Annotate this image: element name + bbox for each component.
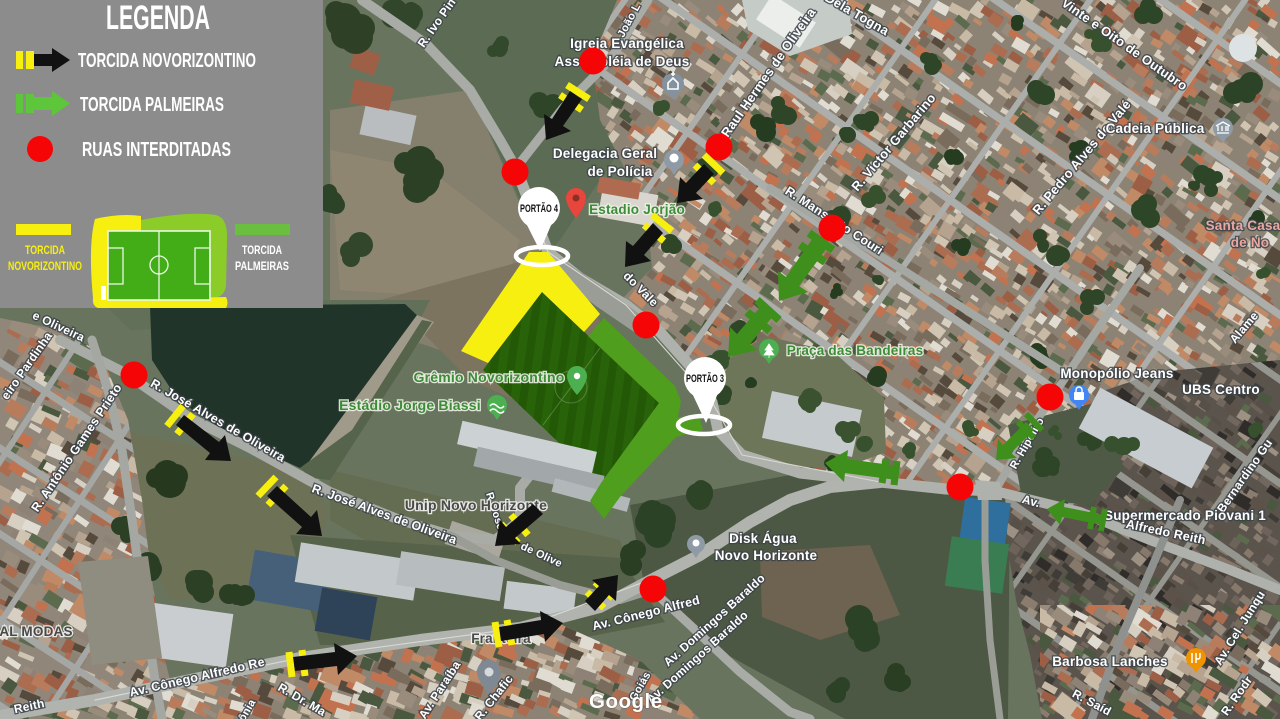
- svg-text:TORCIDA PALMEIRAS: TORCIDA PALMEIRAS: [80, 94, 224, 116]
- svg-text:Grêmio Novorizontino: Grêmio Novorizontino: [414, 369, 565, 385]
- svg-text:PORTÃO 3: PORTÃO 3: [686, 372, 724, 385]
- svg-text:Disk Água: Disk Água: [729, 531, 797, 546]
- svg-text:de No: de No: [1231, 235, 1270, 250]
- svg-text:TORCIDA NOVORIZONTINO: TORCIDA NOVORIZONTINO: [78, 50, 256, 72]
- svg-text:Monopólio Jeans: Monopólio Jeans: [1060, 366, 1173, 381]
- svg-text:Igreja Evangélica: Igreja Evangélica: [570, 36, 684, 51]
- svg-text:NOVORIZONTINO: NOVORIZONTINO: [8, 259, 82, 273]
- svg-text:Santa Casa: Santa Casa: [1206, 218, 1280, 233]
- svg-text:RUAS INTERDITADAS: RUAS INTERDITADAS: [82, 139, 231, 161]
- svg-text:de Polícia: de Polícia: [587, 164, 652, 179]
- svg-text:AL MODAS: AL MODAS: [0, 624, 73, 639]
- svg-text:Barbosa Lanches: Barbosa Lanches: [1052, 654, 1168, 669]
- svg-text:PALMEIRAS: PALMEIRAS: [235, 259, 289, 273]
- svg-text:TORCIDA: TORCIDA: [25, 243, 65, 257]
- svg-text:Assembléia de Deus: Assembléia de Deus: [555, 54, 690, 69]
- svg-text:Delegacia Geral: Delegacia Geral: [553, 146, 657, 161]
- svg-text:UBS Centro: UBS Centro: [1182, 382, 1260, 397]
- svg-text:Praça das Bandeiras: Praça das Bandeiras: [787, 343, 924, 358]
- svg-text:PORTÃO 4: PORTÃO 4: [520, 202, 559, 215]
- svg-text:Estádio Jorge Biassi: Estádio Jorge Biassi: [339, 397, 481, 413]
- svg-text:Novo Horizonte: Novo Horizonte: [715, 548, 818, 563]
- svg-text:Cadeia Pública: Cadeia Pública: [1106, 121, 1205, 136]
- svg-text:Estadio Jorjão: Estadio Jorjão: [589, 202, 685, 217]
- svg-text:LEGENDA: LEGENDA: [106, 0, 210, 37]
- svg-text:Google: Google: [589, 690, 663, 713]
- svg-text:TORCIDA: TORCIDA: [242, 243, 282, 257]
